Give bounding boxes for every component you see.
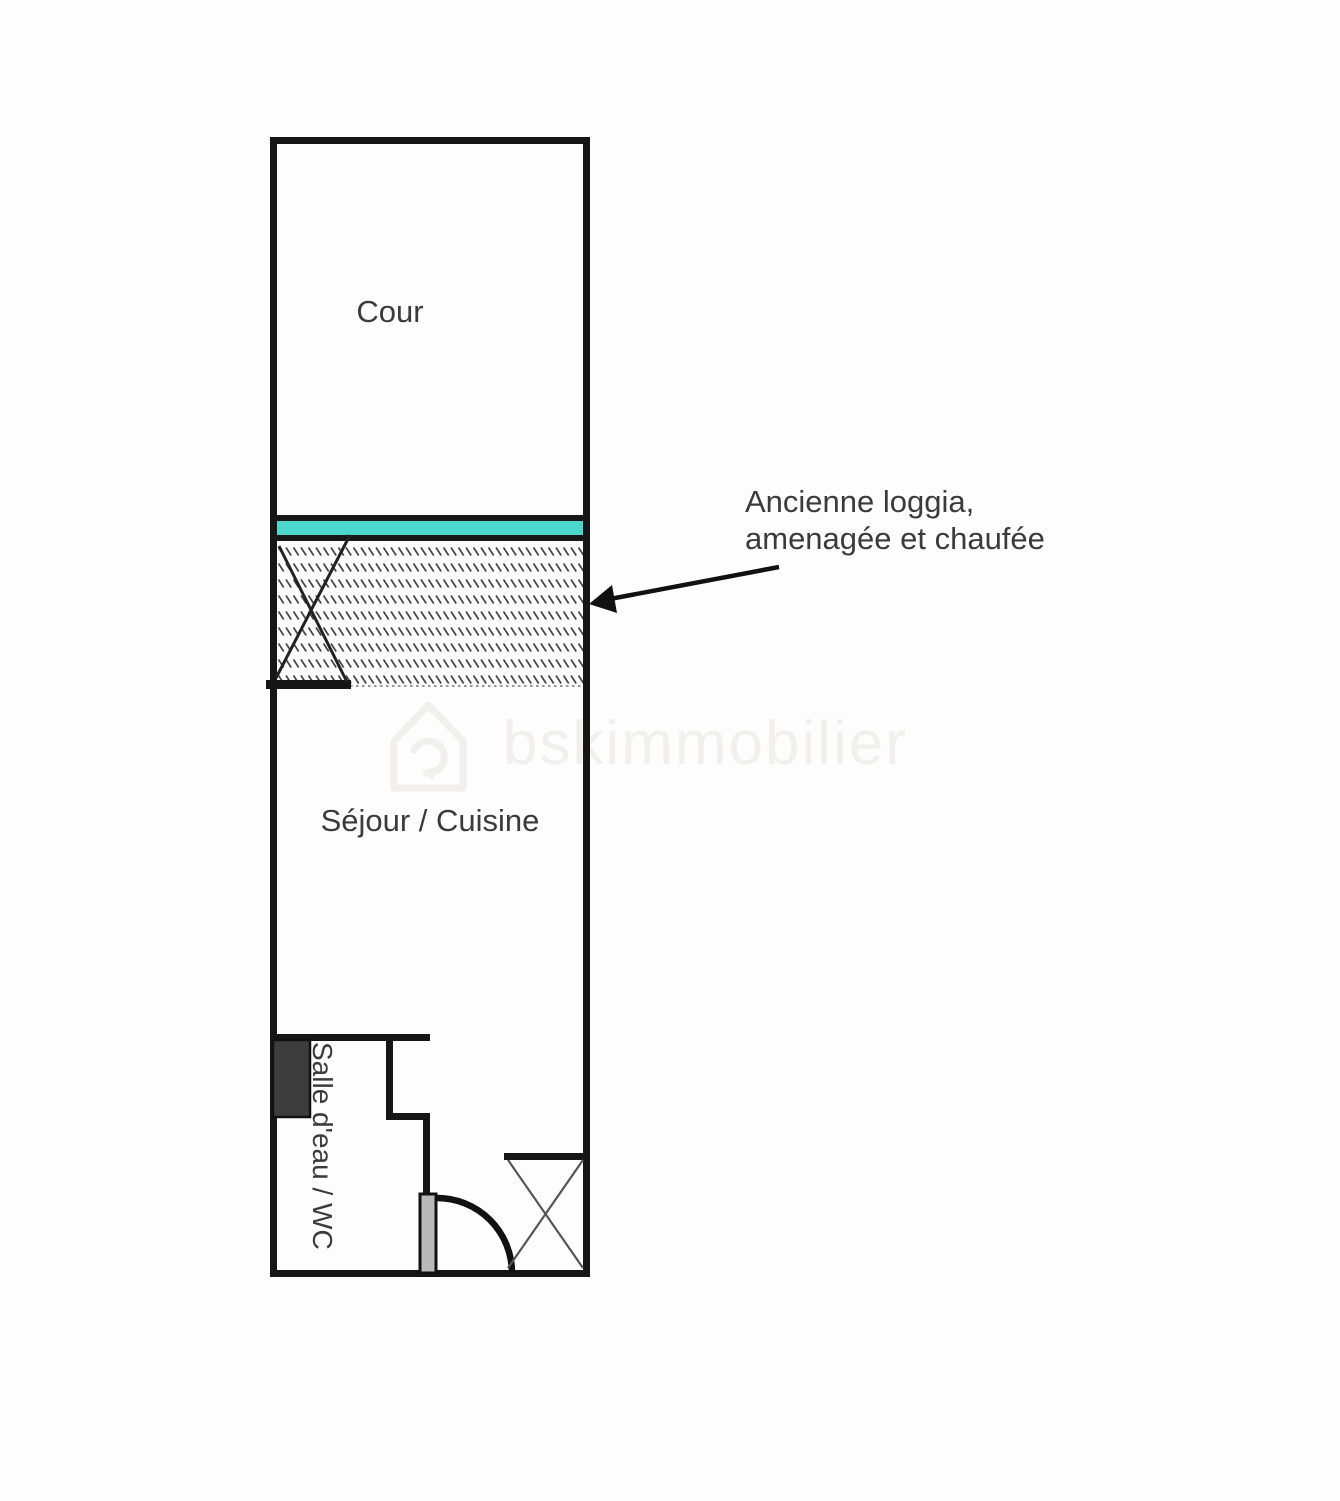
loggia-annotation-line2: amenagée et chaufée [745, 520, 1045, 557]
door-swing-arc [437, 1198, 512, 1273]
room-label-cour: Cour [320, 294, 460, 330]
glazing-strip [277, 515, 583, 541]
loggia-hatch [277, 541, 583, 687]
floorplan-linework [0, 0, 1340, 1501]
room-label-sejour-cuisine: Séjour / Cuisine [300, 803, 560, 839]
loggia-annotation: Ancienne loggia, amenagée et chaufée [745, 483, 1045, 557]
shower-fixture [273, 1040, 310, 1117]
door-leaf [420, 1194, 436, 1273]
floorplan-canvas: bskimmobilier Salle d'eau / WC [0, 0, 1340, 1501]
bsk-logo-icon [394, 705, 463, 788]
loggia-annotation-line1: Ancienne loggia, [745, 483, 1045, 520]
loggia-sill [266, 680, 351, 689]
window-x [504, 1153, 590, 1268]
annotation-arrow [589, 567, 779, 613]
